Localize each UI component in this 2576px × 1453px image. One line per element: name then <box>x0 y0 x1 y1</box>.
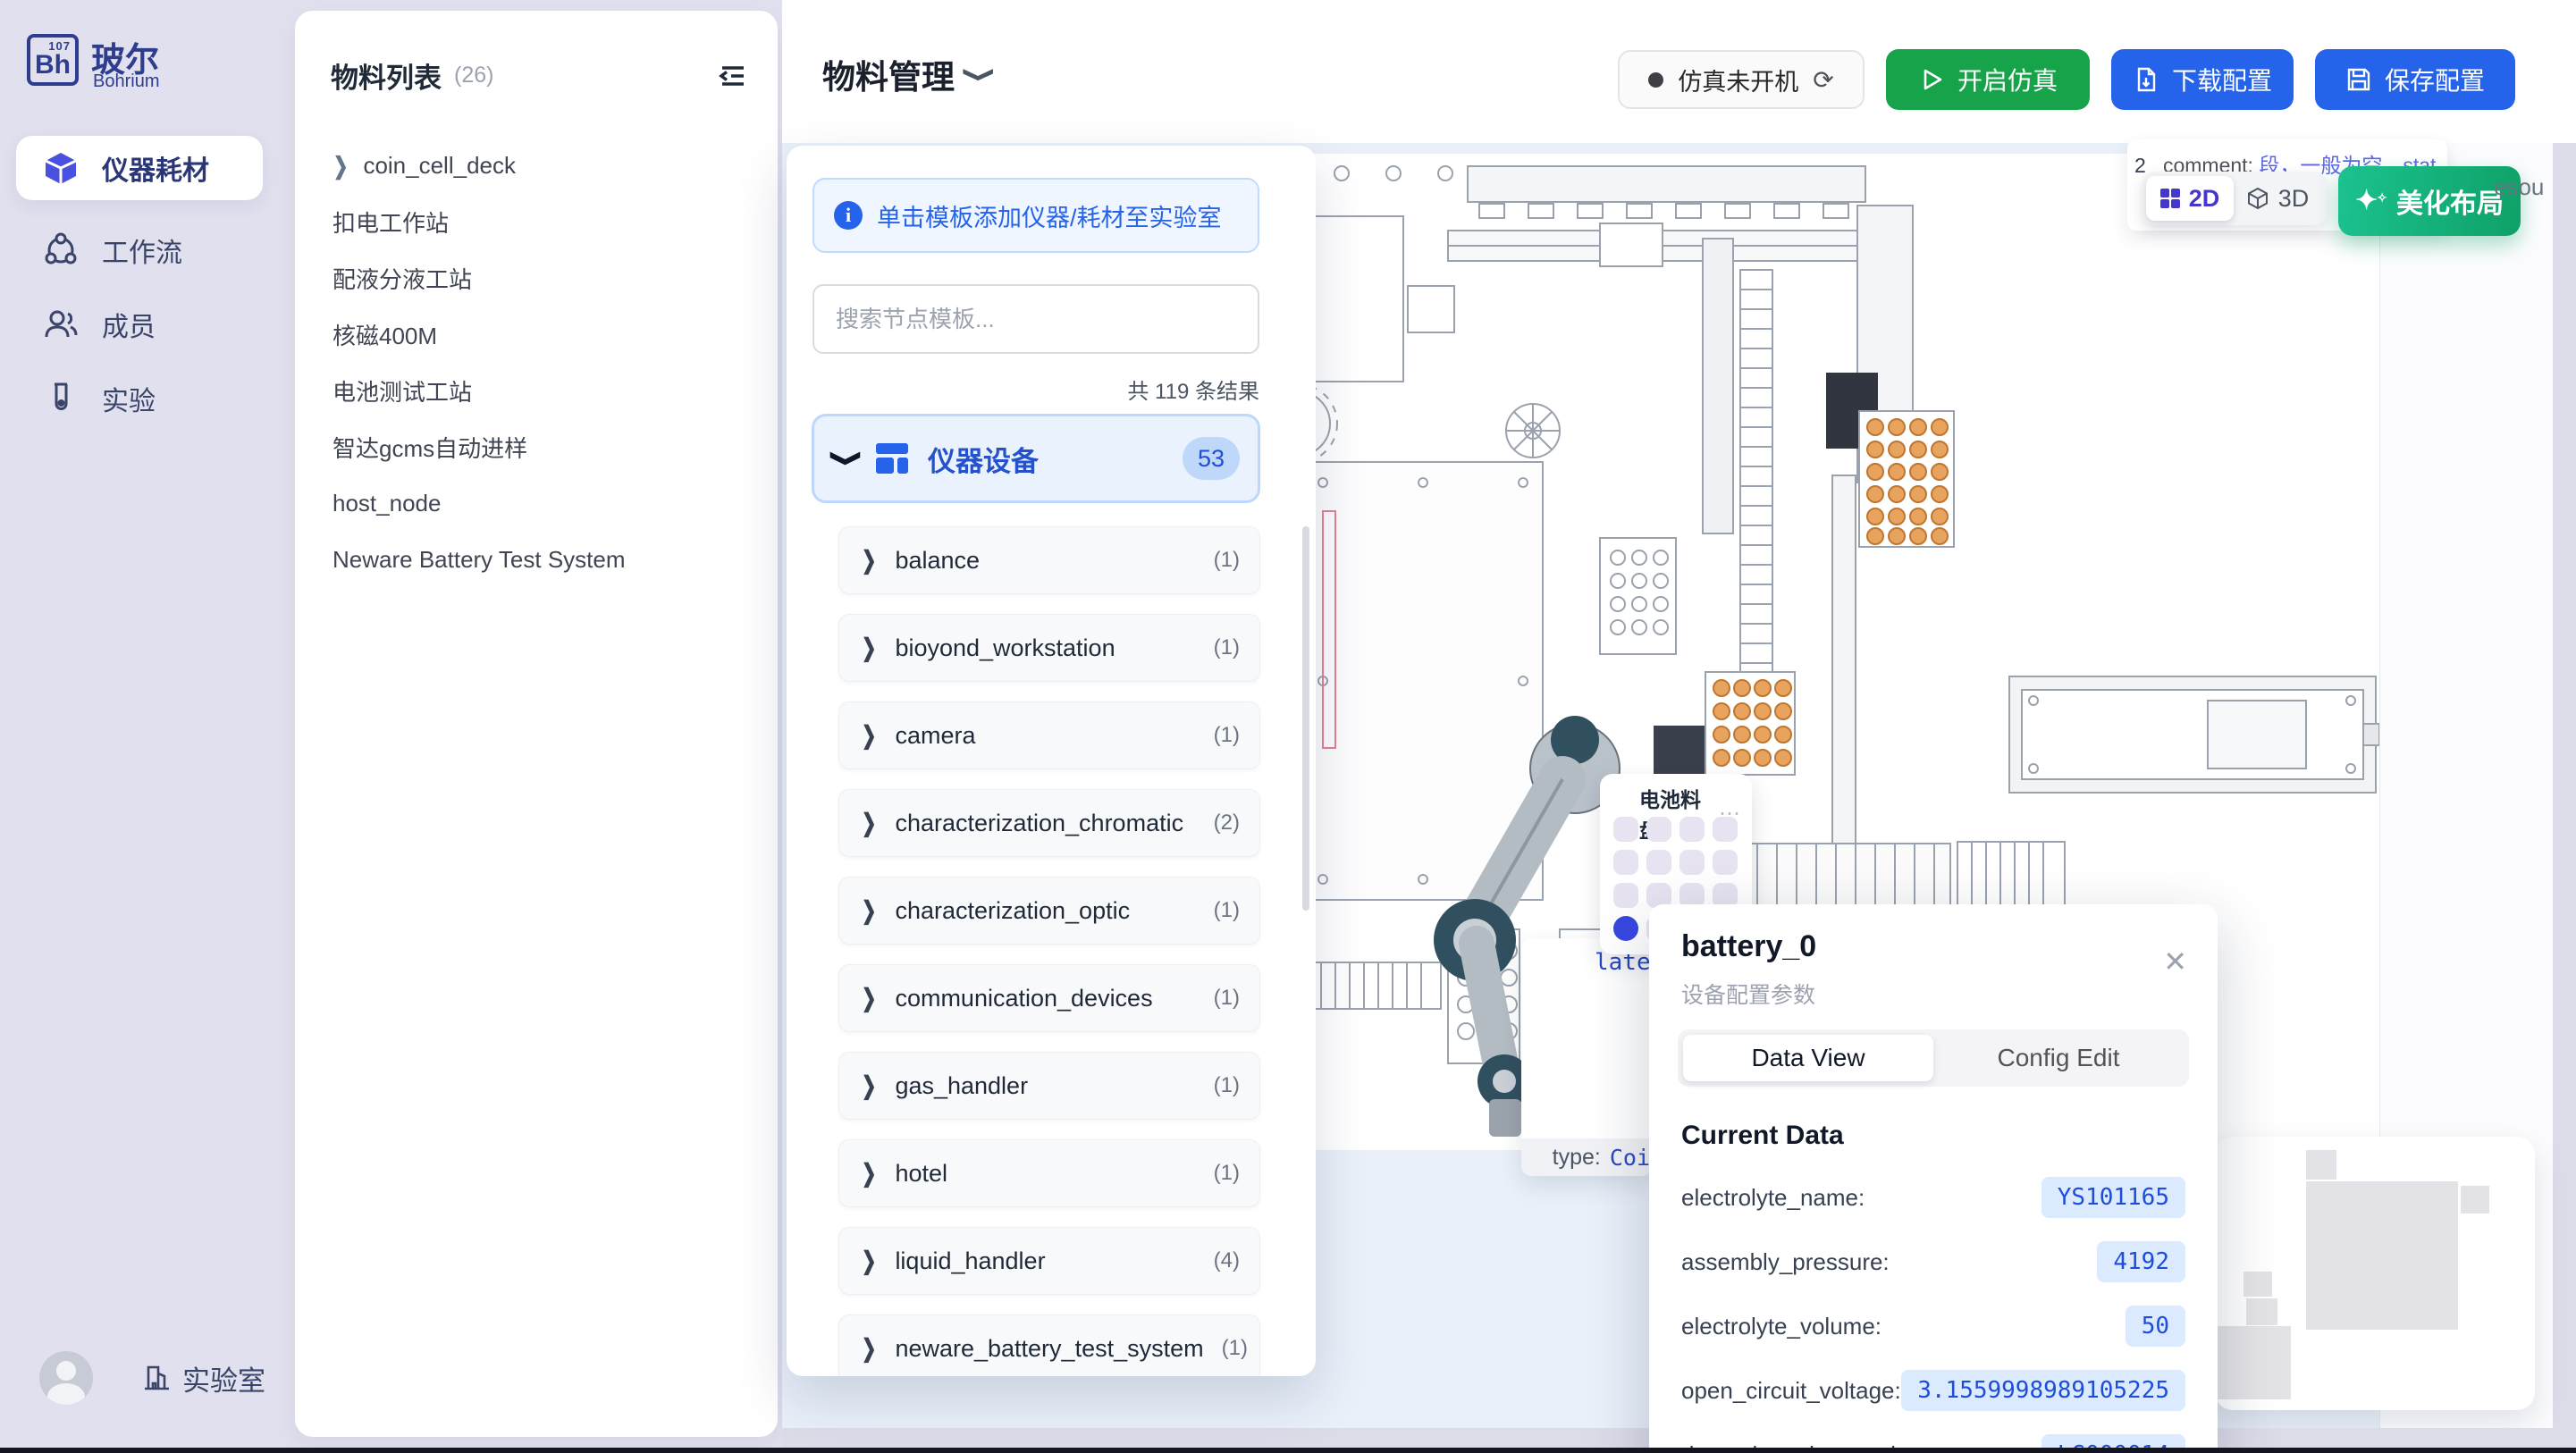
tab[interactable]: Config Edit <box>1933 1035 2184 1081</box>
field-value: 4192 <box>2097 1241 2185 1282</box>
sidebar-item-laboratory[interactable]: 实验室 <box>141 1358 265 1398</box>
chevron-down-icon: ❯ <box>829 449 864 468</box>
chevron-right-icon: ❯ <box>862 1071 877 1101</box>
template-item-count: (1) <box>1222 1336 1248 1361</box>
sample-tray-mid <box>1705 672 1795 775</box>
battery-slot[interactable] <box>1713 850 1738 875</box>
template-item[interactable]: ❯ hotel (1) <box>838 1139 1260 1207</box>
template-item[interactable]: ❯ liquid_handler (4) <box>838 1227 1260 1295</box>
chevron-right-icon: ❯ <box>862 896 877 926</box>
template-item-label: characterization_chromatic <box>895 810 1183 837</box>
section-label: 仪器设备 <box>928 439 1039 479</box>
chevron-right-icon: ❯ <box>862 809 877 838</box>
template-item-label: gas_handler <box>895 1072 1028 1100</box>
sidebar-item-label: 仪器耗材 <box>102 148 209 188</box>
material-list: ❯ coin_cell_deck ❯ 扣电工作站 ❯ 配液分液工站 ❯ 核磁40… <box>295 138 778 588</box>
sample-tray-top <box>1859 411 1954 547</box>
template-item[interactable]: ❯ communication_devices (1) <box>838 964 1260 1032</box>
node-type-label: type: <box>1553 1145 1601 1171</box>
view-2d-button[interactable]: 2D <box>2146 176 2234 221</box>
template-item[interactable]: ❯ neware_battery_test_system (1) <box>838 1314 1260 1376</box>
template-item-label: bioyond_workstation <box>895 634 1115 662</box>
chevron-down-icon: ❯ <box>962 65 998 83</box>
play-icon <box>1918 66 1945 93</box>
battery-config-panel: battery_0 ✕ 设备配置参数 Data View Config Edit… <box>1649 904 2218 1453</box>
material-item-label: 电池测试工站 <box>333 374 472 407</box>
app-window: 107 Bh 玻尔 Bohrium 仪器耗材 工作流 <box>0 0 2576 1453</box>
material-item-label: host_node <box>333 490 441 517</box>
window-bottom-edge <box>0 1448 2576 1453</box>
field-label: electrolyte_name: <box>1681 1184 1865 1212</box>
scrollbar-thumb[interactable] <box>1302 526 1309 911</box>
current-data-heading: Current Data <box>1681 1121 1844 1151</box>
field-label: electrolyte_volume: <box>1681 1313 1881 1340</box>
template-item-count: (1) <box>1214 898 1240 923</box>
status-dot-icon <box>1648 72 1663 88</box>
laboratory-label: 实验室 <box>182 1358 265 1398</box>
start-simulation-button[interactable]: 开启仿真 <box>1886 49 2090 110</box>
section-count-badge: 53 <box>1183 437 1240 480</box>
template-item-label: characterization_optic <box>895 897 1130 925</box>
template-item-count: (1) <box>1214 986 1240 1011</box>
bohrium-logo-icon: 107 Bh <box>27 34 79 86</box>
experiment-icon <box>43 381 79 416</box>
template-item-count: (1) <box>1214 1073 1240 1098</box>
view-3d-label: 3D <box>2278 185 2310 213</box>
sparkles-icon: ✦ <box>2355 186 2386 216</box>
info-icon: i <box>834 201 863 230</box>
field-row: electrolyte_name: YS101165 <box>1681 1165 2185 1230</box>
template-item-count: (1) <box>1214 548 1240 573</box>
building-icon <box>141 1363 172 1393</box>
node-info-tooltip: late type: Coi <box>1521 938 1652 1176</box>
node-template-panel: i 单击模板添加仪器/耗材至实验室 共 119 条结果 ❯ 仪器设备 53 ❯ … <box>787 146 1316 1376</box>
logo-symbol: Bh <box>35 50 71 80</box>
field-list: electrolyte_name: YS101165 assembly_pres… <box>1681 1165 2185 1453</box>
section-instruments[interactable]: ❯ 仪器设备 53 <box>812 414 1260 503</box>
material-item-label: Neware Battery Test System <box>333 546 626 574</box>
field-value: YS101165 <box>2041 1177 2185 1218</box>
logo-number: 107 <box>48 39 71 53</box>
material-list-item[interactable]: ❯ 扣电工作站 <box>295 194 778 250</box>
members-icon <box>43 307 79 342</box>
material-list-title: 物料列表 <box>331 55 442 96</box>
template-item[interactable]: ❯ gas_handler (1) <box>838 1052 1260 1120</box>
material-item-label: 配液分液工站 <box>333 262 472 295</box>
battery-slot[interactable] <box>1613 817 1638 842</box>
view-2d-label: 2D <box>2189 185 2220 213</box>
save-config-button[interactable]: 保存配置 <box>2315 49 2515 110</box>
sidebar-item-label: 工作流 <box>102 231 182 270</box>
material-list-item[interactable]: ❯ Neware Battery Test System <box>295 532 778 588</box>
battery-slot[interactable] <box>1613 850 1638 875</box>
results-count: 共 119 条结果 <box>1127 374 1259 405</box>
chevron-right-icon: ❯ <box>862 1159 877 1188</box>
material-item-label: 智达gcms自动进样 <box>333 431 527 464</box>
battery-panel-tabs: Data View Config Edit <box>1678 1029 2189 1087</box>
sidebar-item-instruments[interactable]: 仪器耗材 <box>16 136 263 200</box>
chevron-right-icon: ❯ <box>862 634 877 663</box>
template-item[interactable]: ❯ bioyond_workstation (1) <box>838 614 1260 682</box>
field-row: electrolyte_volume: 50 <box>1681 1294 2185 1358</box>
template-item[interactable]: ❯ balance (1) <box>838 526 1260 594</box>
material-item-label: 核磁400M <box>333 318 437 351</box>
template-item[interactable]: ❯ characterization_optic (1) <box>838 877 1260 945</box>
template-item-label: hotel <box>895 1160 947 1188</box>
field-label: assembly_pressure: <box>1681 1248 1890 1276</box>
save-config-label: 保存配置 <box>2385 62 2485 97</box>
battery-slot[interactable] <box>1646 817 1671 842</box>
sidebar-item-members[interactable]: 成员 <box>16 292 263 357</box>
refresh-icon[interactable]: ⟳ <box>1813 65 1833 95</box>
grid-2d-icon <box>2160 189 2180 208</box>
minimap[interactable] <box>2215 1137 2535 1410</box>
material-list-item[interactable]: ❯ 核磁400M <box>295 307 778 363</box>
chevron-right-icon: ❯ <box>333 152 349 180</box>
cube-icon <box>43 150 79 186</box>
save-icon <box>2345 66 2372 93</box>
battery-panel-subtitle: 设备配置参数 <box>1681 978 1815 1010</box>
template-item[interactable]: ❯ characterization_chromatic (2) <box>838 789 1260 857</box>
material-list-header: 物料列表 (26) <box>331 55 751 96</box>
tab[interactable]: Data View <box>1683 1035 1933 1081</box>
cube-3d-icon <box>2246 187 2269 210</box>
template-item-label: camera <box>895 722 975 750</box>
simulation-status-label: 仿真未开机 <box>1678 63 1798 97</box>
beautify-layout-label: 美化布局 <box>2396 181 2504 221</box>
category-grid-icon <box>876 443 908 474</box>
info-banner-text: 单击模板添加仪器/耗材至实验室 <box>877 198 1222 233</box>
template-item-count: (1) <box>1214 1161 1240 1186</box>
simulation-status-pill[interactable]: 仿真未开机 ⟳ <box>1618 50 1865 109</box>
material-list-item[interactable]: ❯ host_node <box>295 475 778 532</box>
avatar[interactable] <box>39 1351 93 1405</box>
chevron-right-icon: ❯ <box>862 721 877 751</box>
start-simulation-label: 开启仿真 <box>1957 62 2058 97</box>
sidebar-item-label: 实验 <box>102 379 156 418</box>
right-collapsed-strip <box>2553 143 2576 1448</box>
battery-slot[interactable] <box>1646 850 1671 875</box>
material-list-item[interactable]: ❯ 配液分液工站 <box>295 250 778 307</box>
template-item-count: (1) <box>1214 723 1240 748</box>
field-row: open_circuit_voltage: 3.1559998989105225 <box>1681 1358 2185 1423</box>
close-icon[interactable]: ✕ <box>2163 947 2187 976</box>
logo-subtitle: Bohrium <box>93 71 159 92</box>
tab-label: Config Edit <box>1998 1044 2120 1072</box>
field-label: open_circuit_voltage: <box>1681 1377 1901 1405</box>
sidebar-footer: 实验室 <box>39 1351 265 1405</box>
template-item[interactable]: ❯ camera (1) <box>838 701 1260 769</box>
search-input[interactable] <box>812 284 1259 354</box>
battery-slot[interactable] <box>1679 850 1705 875</box>
resource-panel-fragment: esou <box>2494 173 2551 201</box>
field-value: 50 <box>2126 1306 2185 1347</box>
page-title: 物料管理 <box>822 50 955 98</box>
tab-label: Data View <box>1751 1044 1865 1072</box>
sidebar-item-workflow[interactable]: 工作流 <box>16 218 263 282</box>
view-3d-button[interactable]: 3D <box>2234 176 2321 221</box>
template-item-label: communication_devices <box>895 985 1152 1012</box>
sidebar-item-label: 成员 <box>102 305 156 344</box>
material-item-label: 扣电工作站 <box>333 206 449 239</box>
battery-slot[interactable] <box>1613 916 1638 941</box>
info-banner: i 单击模板添加仪器/耗材至实验室 <box>812 178 1259 253</box>
battery-slot[interactable] <box>1613 883 1638 908</box>
chevron-right-icon: ❯ <box>862 984 877 1013</box>
download-file-icon <box>2133 66 2159 93</box>
template-item-count: (1) <box>1214 635 1240 660</box>
battery-slot[interactable] <box>1713 817 1738 842</box>
template-item-label: balance <box>895 547 980 575</box>
download-config-button[interactable]: 下载配置 <box>2111 49 2294 110</box>
field-value: 3.1559998989105225 <box>1901 1370 2185 1411</box>
template-item-count: (4) <box>1214 1248 1240 1273</box>
battery-slot[interactable] <box>1679 817 1705 842</box>
page-title-dropdown[interactable]: 物料管理 ❯ <box>822 50 989 98</box>
download-config-label: 下载配置 <box>2172 62 2272 97</box>
material-list-item[interactable]: ❯ 智达gcms自动进样 <box>295 419 778 475</box>
node-type-value: Coi <box>1610 1145 1650 1171</box>
template-item-count: (2) <box>1214 810 1240 836</box>
chevron-right-icon: ❯ <box>862 546 877 575</box>
material-list-item[interactable]: ❯ coin_cell_deck <box>295 138 778 194</box>
template-item-label: neware_battery_test_system <box>895 1335 1203 1363</box>
workflow-icon <box>43 232 79 268</box>
collapse-panel-icon[interactable] <box>715 58 751 94</box>
material-list-count: (26) <box>454 63 493 88</box>
template-item-label: liquid_handler <box>895 1247 1045 1275</box>
node-type-row: type: Coi <box>1521 1138 1652 1176</box>
material-item-label: coin_cell_deck <box>363 152 516 180</box>
comment-prefix: 2 <box>2134 154 2146 177</box>
view-mode-toggle: 2D 3D <box>2142 172 2328 225</box>
template-item-list: ❯ balance (1) ❯ bioyond_workstation (1) … <box>838 526 1260 1376</box>
field-row: assembly_pressure: 4192 <box>1681 1230 2185 1294</box>
material-list-panel: 物料列表 (26) ❯ coin_cell_deck ❯ 扣电工作站 ❯ 配液分… <box>295 11 778 1437</box>
sidebar-item-experiments[interactable]: 实验 <box>16 366 263 431</box>
battery-panel-title: battery_0 <box>1681 929 1816 964</box>
material-list-item[interactable]: ❯ 电池测试工站 <box>295 363 778 419</box>
chevron-right-icon: ❯ <box>862 1334 877 1364</box>
chevron-right-icon: ❯ <box>862 1247 877 1276</box>
